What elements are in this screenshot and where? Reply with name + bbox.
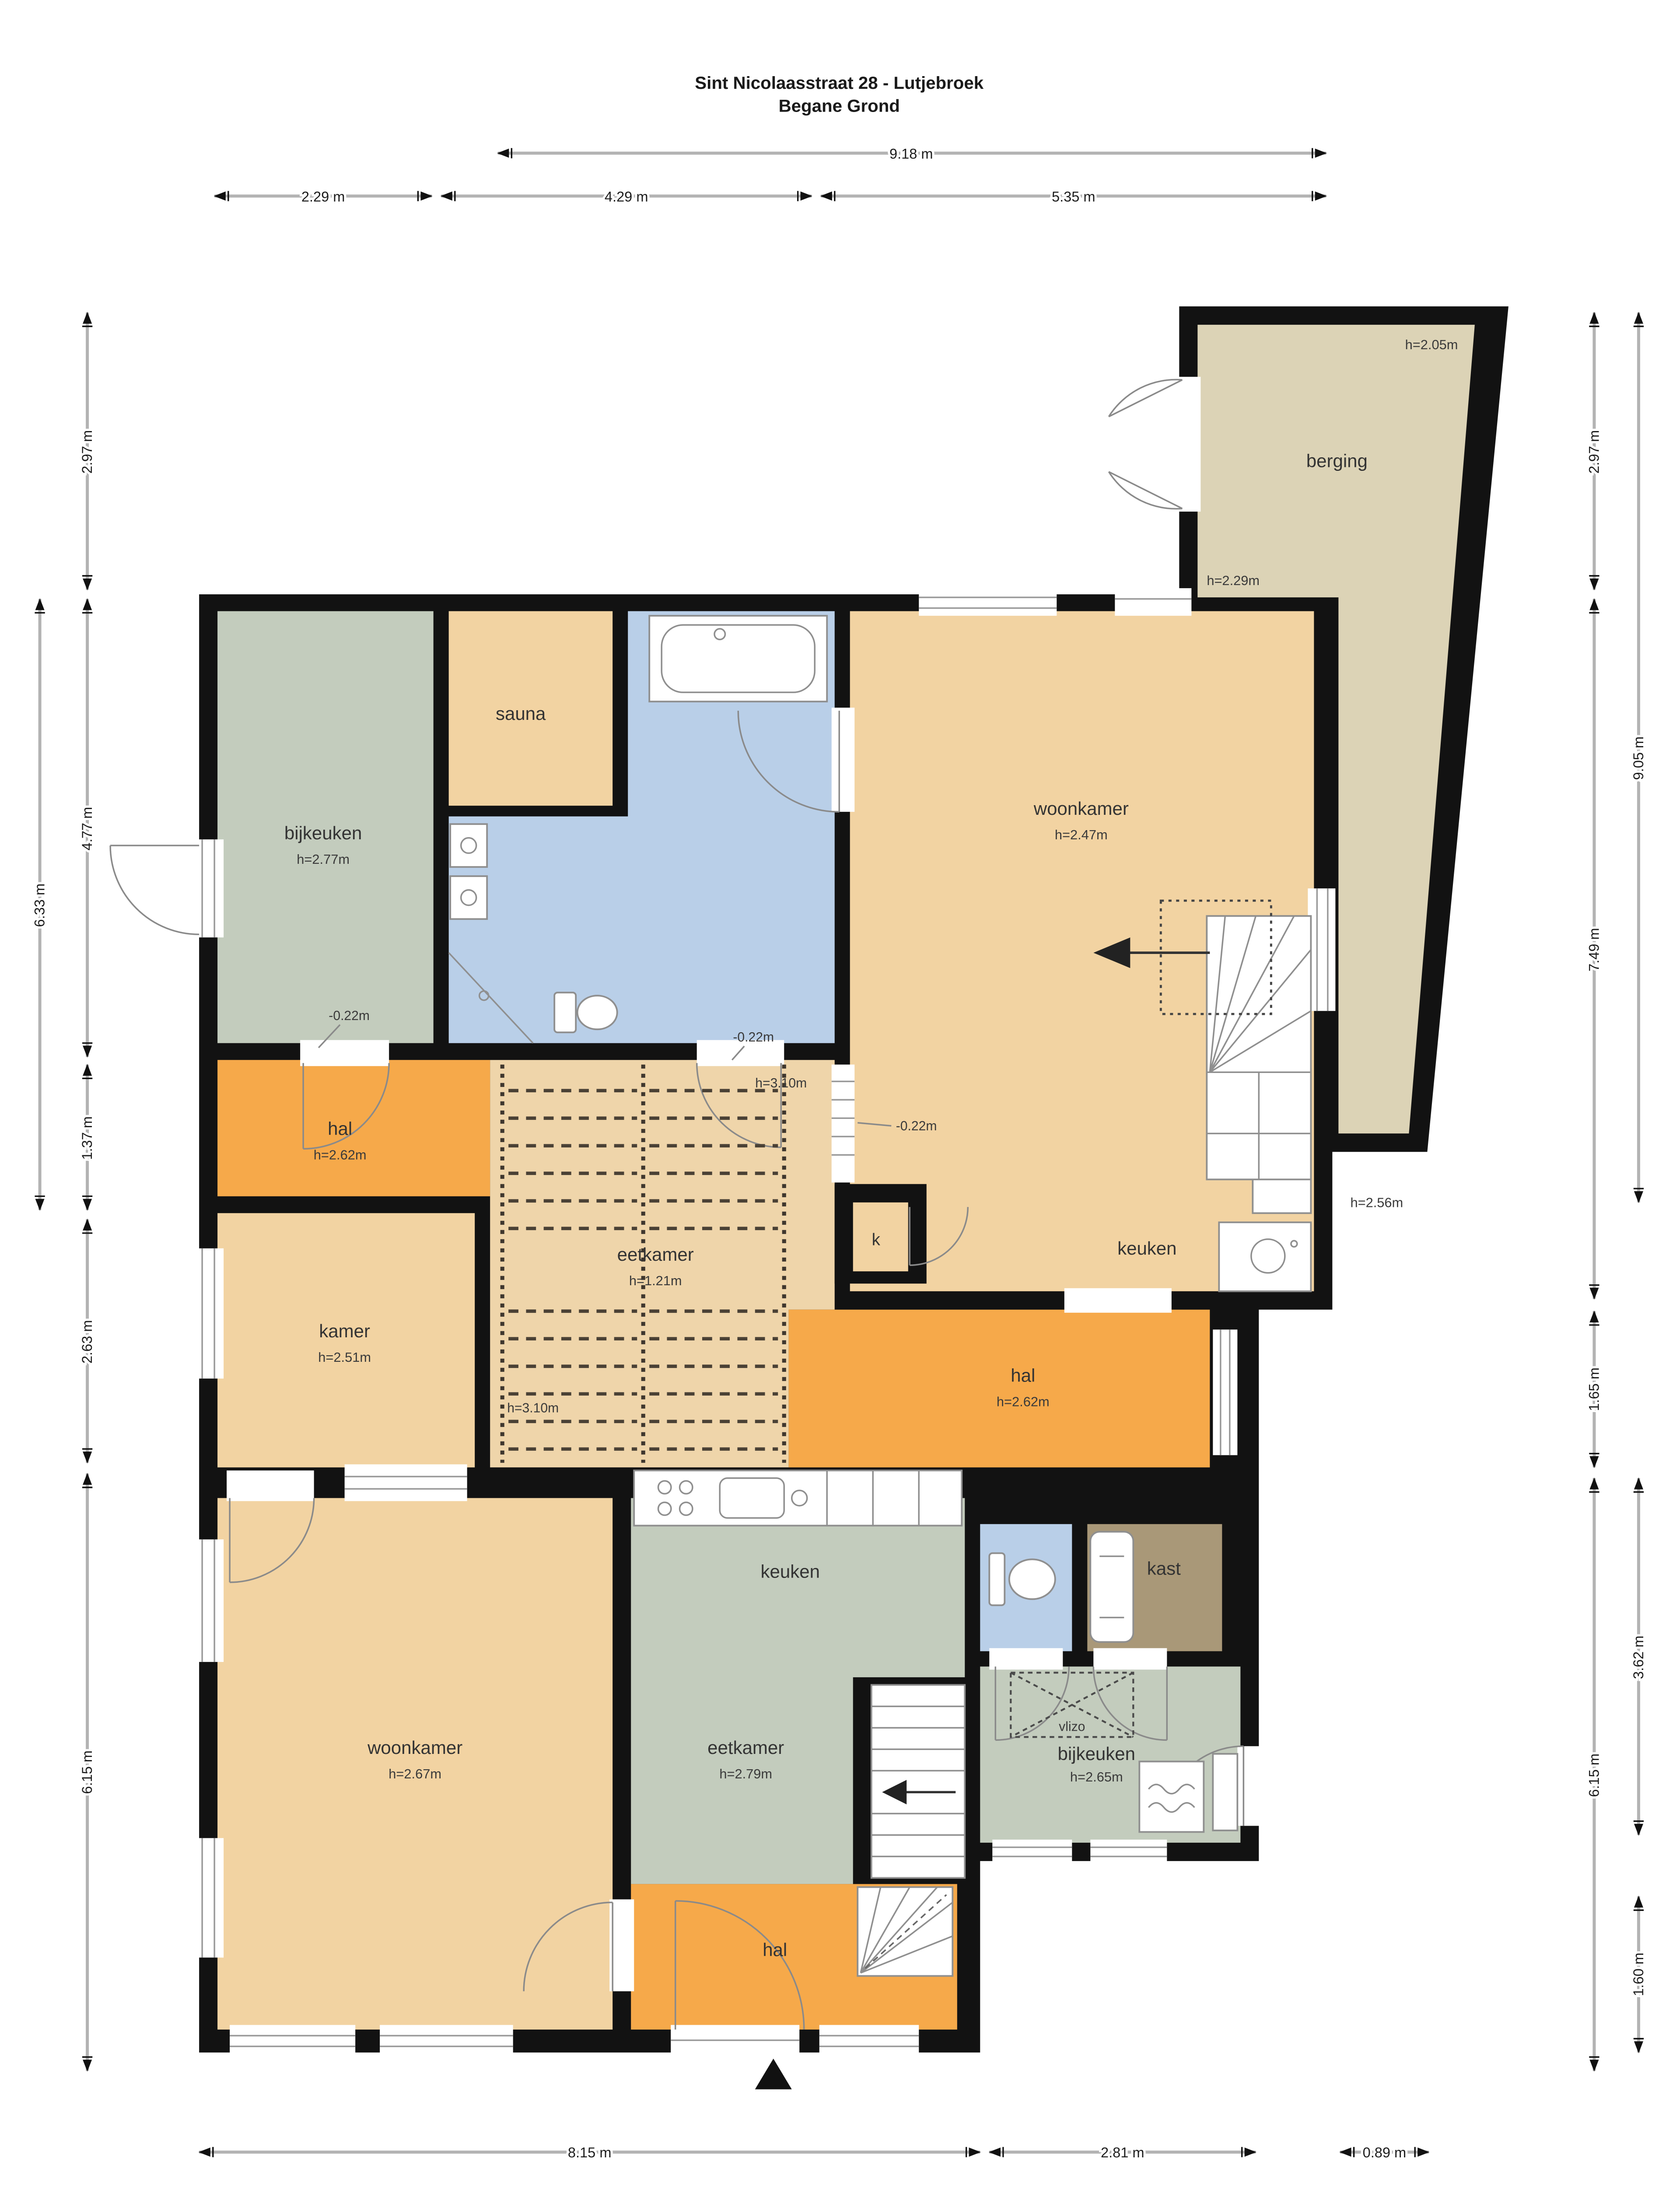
washing-machine-icon — [1139, 1761, 1204, 1832]
room-bijkeuken-boven-label: bijkeuken — [284, 823, 362, 843]
sink-icon — [450, 876, 487, 919]
dim-label: 2.63 m — [79, 1320, 95, 1364]
window-bottom-c — [819, 2025, 919, 2055]
window-woonkamer-right — [1308, 888, 1335, 1011]
dim-label: 2.29 m — [301, 189, 345, 204]
stairs-hal-icon — [857, 1887, 952, 1976]
room-kast-label: kast — [1147, 1558, 1181, 1578]
room-hal-boven-label: hal — [328, 1119, 352, 1139]
room-kamer-label: kamer — [319, 1321, 370, 1341]
room-eetkamer-beneden-label: eetkamer — [707, 1737, 784, 1758]
room-woonkamer-beneden-h: h=2.67m — [388, 1766, 441, 1781]
window-bijkeuken-bottom-a — [992, 1840, 1072, 1864]
dim-label: 8.15 m — [568, 2145, 612, 2160]
appliance-icon — [1213, 1754, 1237, 1830]
dim-label: 2.81 m — [1101, 2145, 1144, 2160]
room-k-label: k — [872, 1231, 881, 1249]
dim-label: 7.49 m — [1586, 928, 1602, 971]
room-hal-midden-h: h=2.62m — [997, 1394, 1050, 1409]
level-mark: -0.22m — [896, 1119, 937, 1133]
dim-label: 9.05 m — [1631, 736, 1646, 780]
dim-label: 1.60 m — [1631, 1953, 1646, 1996]
room-eetkamer-midden-h: h=1.21m — [629, 1273, 682, 1288]
room-berging-label: berging — [1306, 451, 1368, 471]
dim-label: 2.97 m — [1586, 430, 1602, 474]
room-berging-h-top: h=2.05m — [1405, 337, 1458, 352]
toilet-icon — [554, 992, 617, 1032]
room-bijkeuken-beneden-label: bijkeuken — [1058, 1743, 1135, 1764]
floorplan-canvas: Sint Nicolaasstraat 28 - Lutjebroek Bega… — [0, 0, 1680, 2188]
bathtub-icon — [649, 616, 827, 701]
dim-label: 6.33 m — [32, 884, 48, 927]
level-mark: -0.22m — [733, 1030, 774, 1045]
dim-label: 1.65 m — [1586, 1367, 1602, 1411]
room-sauna-label: sauna — [496, 703, 546, 724]
room-berging-h-bottom: h=2.56m — [1351, 1195, 1403, 1210]
height-mark: h=3.10m — [755, 1076, 807, 1090]
title-line2: Begane Grond — [779, 96, 900, 116]
level-mark: -0.22m — [329, 1009, 370, 1023]
window-hal-midden-right — [1213, 1329, 1237, 1455]
room-keuken-beneden-label: keuken — [761, 1561, 820, 1581]
dim-label: 6.15 m — [1586, 1753, 1602, 1797]
kitchen-counter-bottom — [634, 1470, 962, 1525]
dim-label: 0.89 m — [1363, 2145, 1407, 2160]
window-bottom-b — [380, 2025, 513, 2055]
dim-label: 1.37 m — [79, 1116, 95, 1160]
dim-label: 9.18 m — [889, 146, 933, 161]
room-woonkamer-boven-h: h=2.47m — [1055, 827, 1108, 842]
room-hal-midden-label: hal — [1011, 1365, 1035, 1385]
room-berging-h-mid: h=2.29m — [1207, 573, 1260, 588]
dim-label: 3.62 m — [1631, 1636, 1646, 1680]
room-bijkeuken-boven-h: h=2.77m — [297, 852, 350, 867]
vlizo-label: vlizo — [1059, 1719, 1085, 1734]
room-hal-boven-h: h=2.62m — [314, 1147, 367, 1163]
window-kamer-bottom — [345, 1464, 467, 1501]
opening-keuken-hal — [1064, 1288, 1172, 1313]
dim-label: 2.97 m — [79, 430, 95, 474]
window-bijkeuken-bottom-b — [1090, 1840, 1167, 1864]
dim-label: 5.35 m — [1052, 189, 1095, 204]
dim-label: 6.15 m — [79, 1750, 95, 1794]
room-woonkamer-beneden-label: woonkamer — [367, 1737, 462, 1758]
room-keuken-boven-label: keuken — [1117, 1238, 1176, 1259]
window-bottom-a — [230, 2025, 355, 2055]
title-line1: Sint Nicolaasstraat 28 - Lutjebroek — [695, 73, 983, 93]
room-eetkamer-beneden-h: h=2.79m — [719, 1766, 772, 1781]
room-bijkeuken-beneden-h: h=2.65m — [1070, 1769, 1123, 1785]
sink-icon — [450, 824, 487, 867]
door-woonkamer-berging — [1115, 588, 1191, 616]
height-mark: h=3.10m — [507, 1401, 559, 1415]
room-hal-midden-floor — [789, 1310, 1210, 1468]
dim-label: 4.77 m — [79, 807, 95, 851]
room-woonkamer-beneden-floor — [217, 1498, 612, 2030]
window-middle-strip — [832, 1065, 855, 1183]
window-kamer-left — [193, 1248, 224, 1379]
room-k-floor — [853, 1203, 908, 1272]
window-woonkamer-left-b — [193, 1838, 224, 1957]
boiler-icon — [1090, 1532, 1133, 1642]
stairs-kelder-icon — [871, 1685, 965, 1878]
room-eetkamer-midden-label: eetkamer — [617, 1244, 694, 1265]
room-hal-boven-floor — [217, 1060, 490, 1196]
room-kamer-h: h=2.51m — [318, 1350, 371, 1365]
dim-label: 4.29 m — [605, 189, 648, 204]
window-woonkamer-top — [919, 588, 1057, 616]
room-hal-beneden-label: hal — [763, 1939, 787, 1960]
room-woonkamer-boven-label: woonkamer — [1033, 798, 1129, 819]
window-woonkamer-left-a — [193, 1539, 224, 1662]
